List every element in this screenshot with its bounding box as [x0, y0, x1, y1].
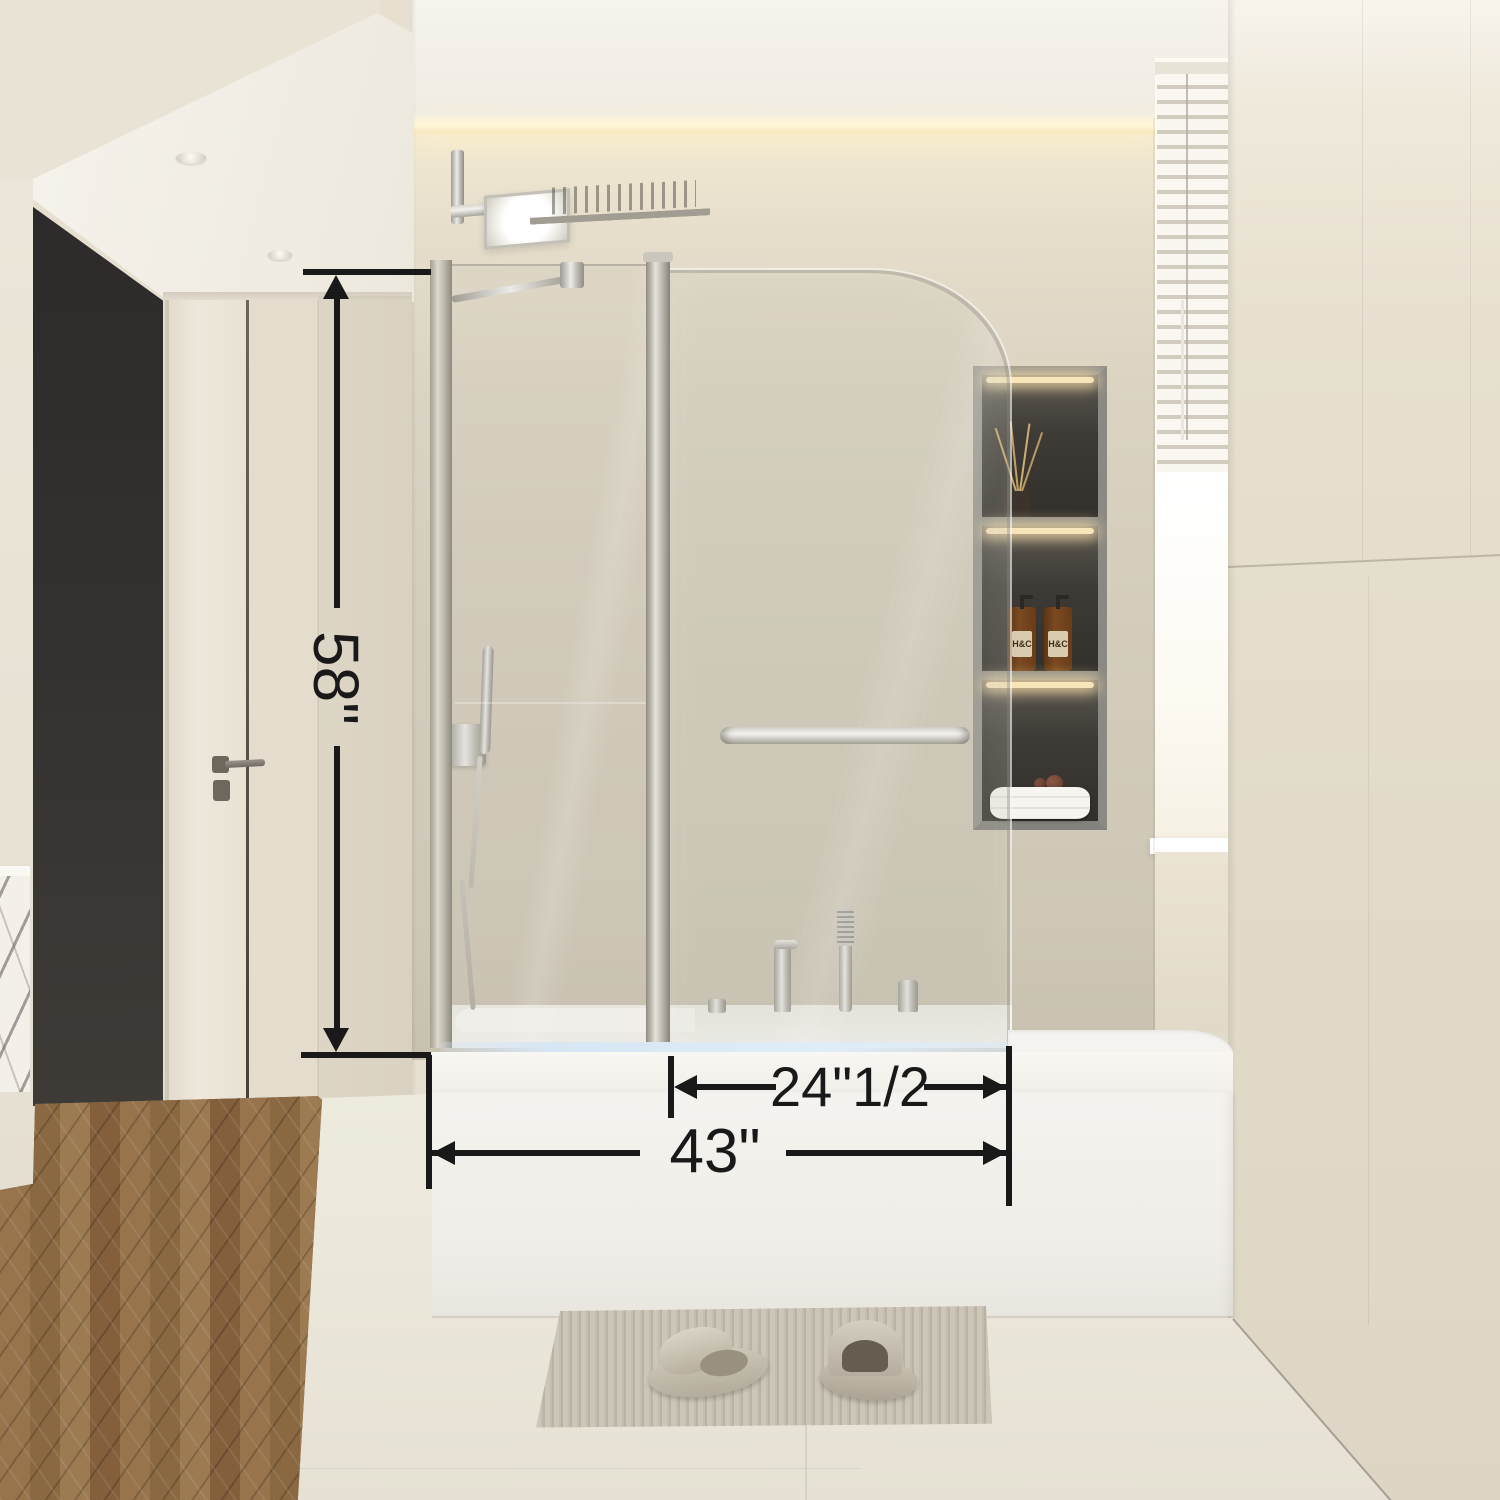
wall-corner-line: [1153, 118, 1155, 1062]
marble-console: [0, 868, 30, 1092]
support-bar-clamp: [560, 262, 584, 288]
bottle-pump-spout: [1056, 595, 1069, 599]
tile-seam: [300, 1468, 860, 1469]
window-light-glow: [1155, 472, 1230, 842]
panel-width-arrow-left: [674, 1075, 697, 1099]
blinds-wand: [1181, 300, 1184, 440]
door-lintel: [163, 292, 412, 301]
marble-console-top-edge: [0, 866, 30, 876]
glass-reflection-line: [455, 702, 647, 704]
bathroom-shower-door-product-photo: H&C H&C: [0, 0, 1500, 1500]
height-dim-line: [334, 746, 340, 1030]
glass-door-towel-bar: [720, 727, 970, 744]
height-dim-bottom-cap: [301, 1052, 431, 1058]
total-width-ext-left: [426, 1055, 432, 1189]
cove-light-strip: [414, 112, 1160, 134]
recessed-light: [268, 250, 292, 260]
slipper-opening: [842, 1340, 888, 1372]
width-ext-right: [1006, 1046, 1012, 1206]
wall-panel-seam: [1362, 0, 1363, 560]
hinge-top-cap: [643, 252, 673, 262]
window-blinds: [1157, 74, 1228, 472]
right-foreground-wall: [1228, 0, 1500, 1500]
bottle-label: H&C: [1012, 631, 1032, 657]
hinge-pivot-bar: [646, 256, 670, 1050]
height-dim-line: [334, 296, 340, 608]
total-width-line: [786, 1150, 1006, 1156]
door-frame-left: [165, 300, 169, 1100]
bottle-pump-spout: [1020, 595, 1033, 599]
total-width-arrow-right: [983, 1141, 1006, 1165]
pivot-glass-door: [670, 268, 1012, 1050]
panel-width-arrow-right: [983, 1075, 1006, 1099]
glass-wall-profile: [430, 260, 452, 1048]
height-dim-arrow-down: [323, 1028, 349, 1052]
rain-shower-head: [530, 171, 710, 224]
total-width-arrow-left: [432, 1141, 455, 1165]
door-keyhole-plate: [213, 780, 230, 801]
soap-bottle: H&C: [1008, 607, 1036, 671]
wall-panel-seam: [1470, 0, 1471, 556]
dark-accent-wall: [33, 196, 163, 1106]
soap-bottle: H&C: [1044, 607, 1072, 671]
height-dimension-label: 58": [271, 613, 401, 743]
entry-door: [168, 300, 250, 1100]
bathtub-apron: [428, 1092, 1233, 1316]
wall-panel-seam: [1368, 575, 1369, 1325]
recessed-light: [176, 152, 206, 164]
fixed-glass-panel: [452, 264, 650, 1050]
bottle-label: H&C: [1048, 631, 1068, 657]
total-width-line: [432, 1150, 640, 1156]
panel-width-label: 24"1/2: [758, 1056, 942, 1116]
total-width-label: 43": [645, 1118, 785, 1184]
hallway-wood-floor: [0, 1090, 340, 1500]
door-gap-line: [246, 300, 249, 1100]
blinds-cord: [1186, 74, 1188, 440]
